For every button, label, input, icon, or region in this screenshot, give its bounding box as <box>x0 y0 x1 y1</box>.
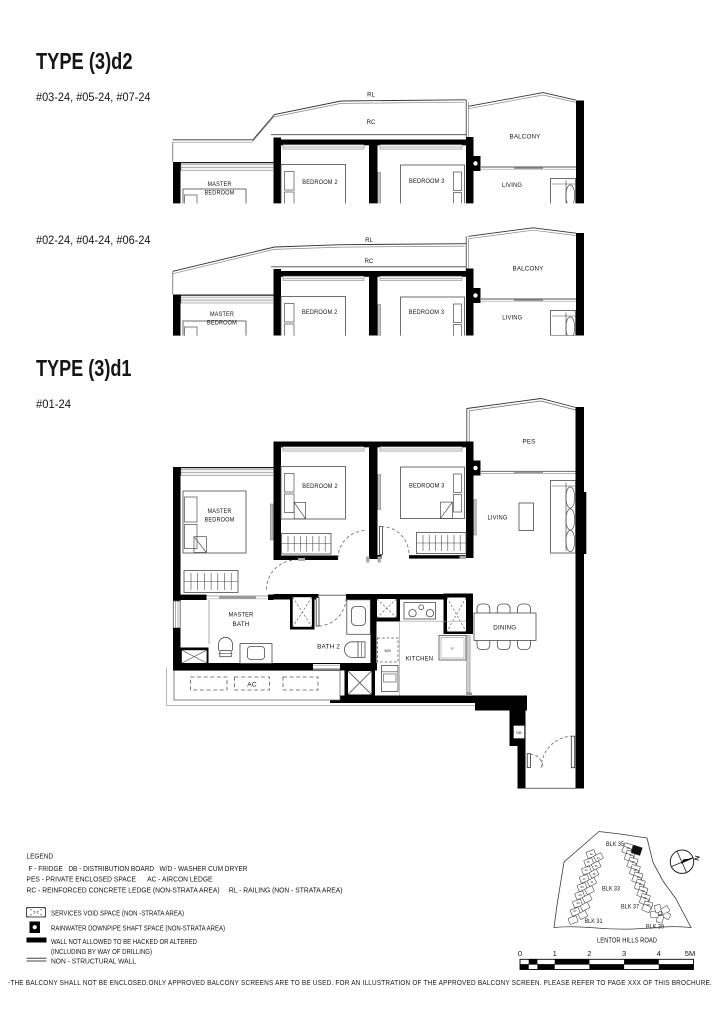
svg-text:LIVING: LIVING <box>502 315 522 322</box>
svg-text:BLK 35: BLK 35 <box>606 841 624 848</box>
svg-text:BEDROOM 2: BEDROOM 2 <box>302 483 338 490</box>
svg-text:35: 35 <box>658 913 662 917</box>
svg-text:BEDROOM 3: BEDROOM 3 <box>409 309 445 316</box>
svg-text:10: 10 <box>584 868 588 872</box>
svg-text:LIVING: LIVING <box>502 182 522 189</box>
svg-text:BEDROOM 3: BEDROOM 3 <box>409 178 445 185</box>
svg-text:LEGEND: LEGEND <box>27 852 54 861</box>
svg-text:KITCHEN: KITCHEN <box>406 656 434 663</box>
svg-text:MASTER: MASTER <box>229 611 254 618</box>
svg-text:MASTER: MASTER <box>210 311 234 318</box>
svg-text:TYPE (3)d1: TYPE (3)d1 <box>36 355 132 381</box>
svg-text:BLK 39: BLK 39 <box>646 924 664 931</box>
svg-text:26: 26 <box>631 860 635 864</box>
svg-text:03: 03 <box>578 893 582 897</box>
svg-text:LENTOR HILLS ROAD: LENTOR HILLS ROAD <box>597 938 657 945</box>
svg-text:15: 15 <box>586 860 590 864</box>
svg-text:3: 3 <box>622 949 626 958</box>
svg-text:BALCONY: BALCONY <box>513 266 544 273</box>
svg-text:F - FRIDGE DB - DISTRIBUTION: F - FRIDGE DB - DISTRIBUTION BOARD W/D -… <box>29 864 248 873</box>
svg-text:09: 09 <box>576 901 580 905</box>
svg-text:BATH 2: BATH 2 <box>317 644 340 651</box>
svg-text:BLK 37: BLK 37 <box>621 904 639 911</box>
svg-text:05: 05 <box>580 885 584 889</box>
svg-text:24: 24 <box>629 853 633 857</box>
svg-text:32: 32 <box>636 875 640 879</box>
svg-text:12: 12 <box>589 852 593 856</box>
svg-text:0: 0 <box>518 949 522 958</box>
svg-text:2: 2 <box>587 949 591 958</box>
svg-text:RAINWATER DOWNPIPE SHAFT SPACE: RAINWATER DOWNPIPE SHAFT SPACE (NON-STRA… <box>51 923 225 932</box>
svg-text:28: 28 <box>646 903 650 907</box>
svg-text:LIVING: LIVING <box>488 515 508 522</box>
svg-text:BEDROOM: BEDROOM <box>205 189 235 196</box>
svg-text:RC: RC <box>365 259 374 265</box>
svg-text:BEDROOM 2: BEDROOM 2 <box>302 309 338 316</box>
svg-text:TYPE (3)d2: TYPE (3)d2 <box>36 48 133 74</box>
svg-text:DINING: DINING <box>493 625 516 632</box>
svg-text:PES - PRIVATE ENCLOSED SPACE: PES - PRIVATE ENCLOSED SPACE AC - AIRCON… <box>27 875 213 884</box>
svg-text:14: 14 <box>596 856 600 860</box>
svg-text:28: 28 <box>633 868 637 872</box>
svg-text:29: 29 <box>643 896 647 900</box>
svg-text:DB: DB <box>516 731 522 735</box>
svg-text:BEDROOM: BEDROOM <box>205 517 235 524</box>
svg-text:#01-24: #01-24 <box>36 397 71 411</box>
svg-text:RC - REINFORCED CONCRETE LEDGE: RC - REINFORCED CONCRETE LEDGE (NON-STRA… <box>27 886 343 895</box>
svg-text:BEDROOM 3: BEDROOM 3 <box>409 483 445 490</box>
svg-text:W/D: W/D <box>384 649 391 653</box>
svg-text:BEDROOM: BEDROOM <box>207 320 237 327</box>
svg-text:#03-24, #05-24, #07-24: #03-24, #05-24, #07-24 <box>36 90 151 104</box>
svg-text:RL: RL <box>367 93 375 99</box>
svg-text:01: 01 <box>590 880 594 884</box>
svg-text:BLK 33: BLK 33 <box>602 886 620 893</box>
svg-text:PES: PES <box>523 438 536 445</box>
svg-text:BLK 31: BLK 31 <box>585 918 603 925</box>
svg-text:20: 20 <box>626 846 630 850</box>
svg-text:AC: AC <box>247 682 257 689</box>
svg-text:#02-24, #04-24, #06-24: #02-24, #04-24, #06-24 <box>36 233 151 247</box>
svg-text:MASTER: MASTER <box>208 181 232 188</box>
svg-text:18: 18 <box>592 872 596 876</box>
svg-text:(INCLUDING BY WAY OF DRILLING): (INCLUDING BY WAY OF DRILLING) <box>51 947 152 956</box>
svg-text:31: 31 <box>638 882 642 886</box>
svg-text:07: 07 <box>573 909 577 913</box>
svg-text:NON - STRUCTURAL WALL: NON - STRUCTURAL WALL <box>51 957 136 966</box>
svg-text:MASTER: MASTER <box>208 508 232 515</box>
svg-text:34: 34 <box>641 889 645 893</box>
svg-text:4: 4 <box>657 949 661 958</box>
svg-text:SERVICES VOID SPACE (NON -STRA: SERVICES VOID SPACE (NON -STRATA AREA) <box>51 909 184 918</box>
svg-text:RL: RL <box>365 238 373 244</box>
svg-text:RC: RC <box>367 120 376 126</box>
svg-text:BEDROOM 2: BEDROOM 2 <box>302 179 338 186</box>
svg-text:BATH: BATH <box>233 621 250 628</box>
svg-text:WALL NOT ALLOWED TO BE HACKED: WALL NOT ALLOWED TO BE HACKED OR ALTERED <box>51 937 197 946</box>
svg-text:BALCONY: BALCONY <box>510 134 541 141</box>
svg-text:16: 16 <box>594 864 598 868</box>
svg-text:-THE BALCONY SHALL NOT BE ENCL: -THE BALCONY SHALL NOT BE ENCLOSED.ONLY … <box>8 978 712 987</box>
svg-text:17: 17 <box>582 877 586 881</box>
svg-text:5M: 5M <box>685 949 696 958</box>
svg-text:1: 1 <box>553 949 557 958</box>
